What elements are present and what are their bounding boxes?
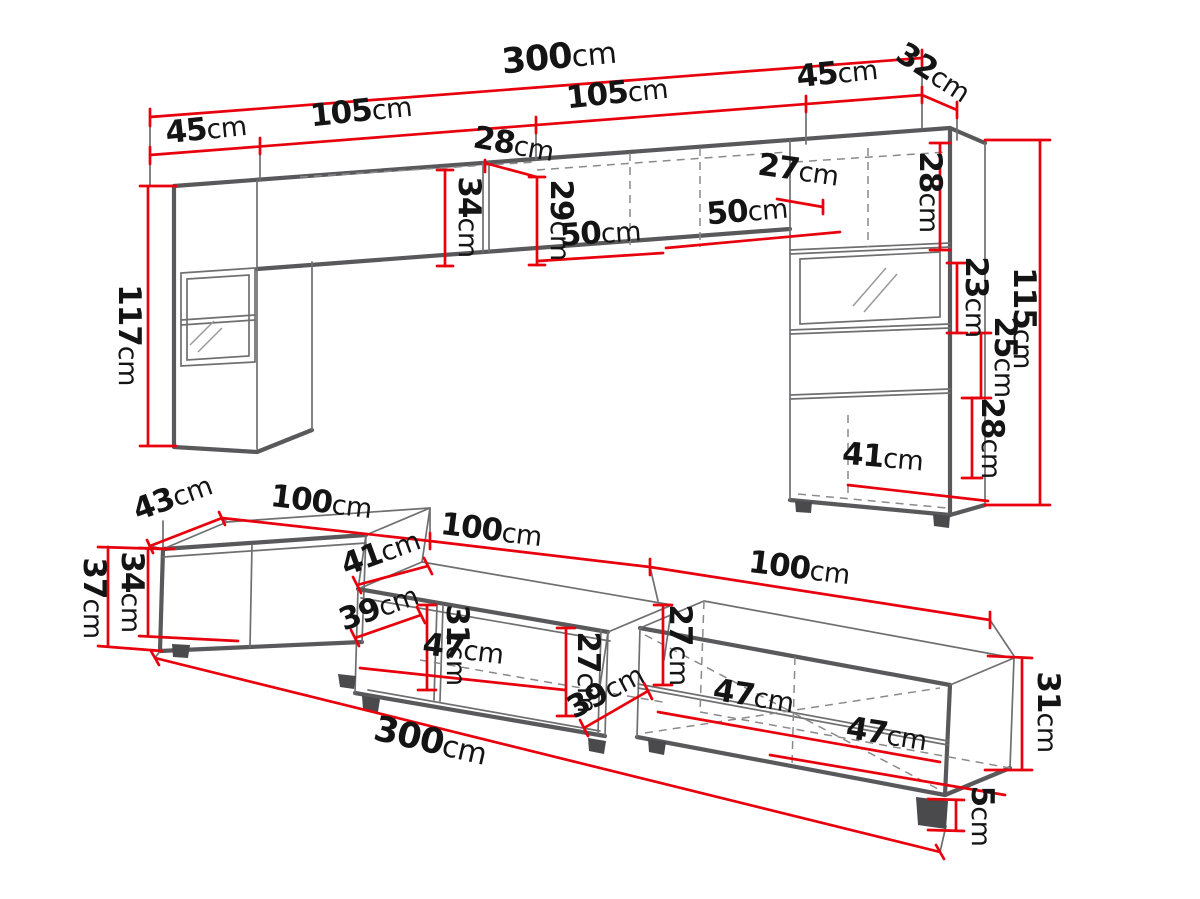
dim-wall-left-column-height: 117cm [111,284,147,386]
dim-stand-shelf-width-back: 47cm [844,710,930,758]
dim-wall-right-bottom-width: 41cm [841,436,925,479]
dim-stand-shelf-width-front: 47cm [711,672,797,720]
dim-stand-total-width: 300cm [370,709,491,774]
dim-wall-left-cabinet-width: 105cm [308,88,413,134]
dim-wall-right-top-height: 28cm [912,151,948,232]
dim-wall-right-cabinet-width: 105cm [564,70,669,116]
dim-wall-total-width: 300cm [500,32,618,83]
dim-stand-opening-height-right: 27cm [662,604,698,685]
wall-unit-dimension-labels: 300cm 45cm 105cm 105cm 45cm 32cm 28cm 34… [111,32,1042,479]
dim-stand-side-depth: 43cm [128,467,217,529]
dim-wall-right-bottom-height: 28cm [974,397,1010,478]
wall-unit-dimension-lines [140,50,1050,505]
diagram-page: 300cm 45cm 105cm 105cm 45cm 32cm 28cm 34… [0,0,1200,899]
dim-stand-opening-height-end: 31cm [1030,671,1066,752]
dim-wall-upper-shelf-depth: 27cm [756,147,842,194]
dim-stand-foot-height: 5cm [964,786,1000,847]
dim-stand-module2-width: 100cm [438,506,544,554]
dim-stand-door-height: 34cm [114,551,150,632]
dim-stand-shelf-width-left: 47cm [421,626,506,672]
dim-wall-right-end-width: 45cm [795,51,880,95]
dim-wall-shelf-span-right: 50cm [705,190,789,233]
dim-stand-overall-height: 37cm [76,557,112,638]
dim-stand-module1-width: 100cm [268,478,374,526]
dim-wall-center-height-left: 34cm [451,176,487,257]
dim-wall-shelf-span-left: 50cm [558,212,642,254]
furniture-dimension-diagram: 300cm 45cm 105cm 105cm 45cm 32cm 28cm 34… [0,0,1200,899]
tv-stand-dimension-lines [98,512,1032,859]
dim-wall-right-column-height: 115cm [1006,267,1042,369]
glass-marks [190,268,897,352]
